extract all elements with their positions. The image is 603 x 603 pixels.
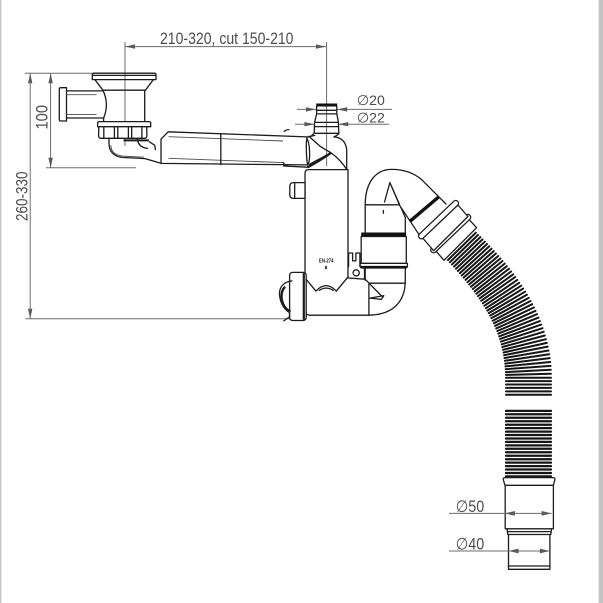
svg-text:EN-274: EN-274 [319,258,334,264]
svg-text:260-330: 260-330 [14,172,32,222]
svg-text:∅50: ∅50 [456,498,485,516]
svg-text:∅22: ∅22 [357,110,385,125]
svg-text:210-320, cut 150-210: 210-320, cut 150-210 [160,30,294,48]
svg-text:∅20: ∅20 [357,93,385,108]
svg-text:∅40: ∅40 [456,536,485,554]
svg-text:100: 100 [34,105,52,130]
